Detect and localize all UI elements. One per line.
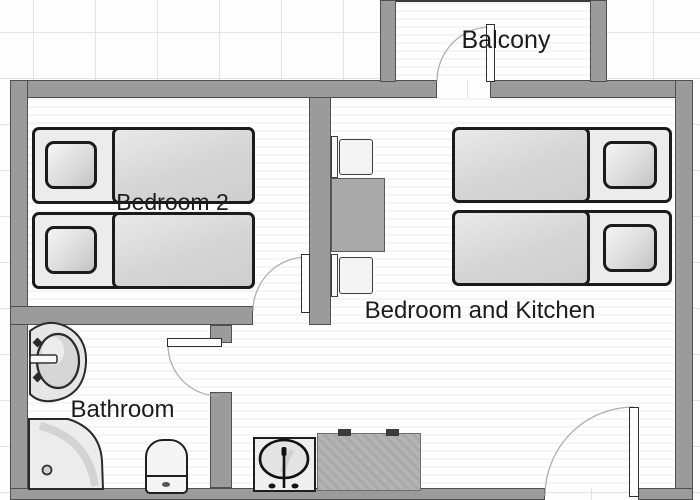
balcony-label: Balcony	[440, 27, 572, 55]
floor-plan: Balcony Bedroom 2 Bedroom and Kitchen Ba…	[0, 0, 700, 500]
wall-bottom-right	[638, 488, 693, 500]
wall-top-left	[10, 80, 437, 98]
bed-mattress	[452, 210, 590, 286]
wall-bedroom2-right	[309, 97, 331, 325]
bed-pillow	[603, 141, 657, 189]
bed-mattress	[452, 127, 590, 203]
bedroom2-door	[301, 254, 310, 313]
kitchen-sink	[253, 437, 316, 492]
bed-pillow	[45, 226, 97, 274]
counter-knob	[386, 429, 399, 436]
bedroom-kitchen-label: Bedroom and Kitchen	[350, 298, 610, 324]
counter-knob	[338, 429, 351, 436]
balcony-wall-left	[380, 0, 396, 82]
bed-pillow	[45, 141, 97, 189]
kitchen-counter	[317, 433, 421, 491]
chair	[331, 254, 375, 297]
bed-pillow	[603, 224, 657, 272]
bedroom2-label: Bedroom 2	[100, 190, 245, 215]
wall-bathroom-lower	[210, 392, 232, 488]
balcony-edge-line	[382, 0, 606, 2]
toilet	[145, 439, 188, 494]
balcony-wall-right	[590, 0, 607, 82]
wall-right	[675, 80, 693, 500]
dining-table	[331, 178, 385, 252]
wall-left	[10, 80, 28, 500]
bathroom-label: Bathroom	[55, 397, 190, 423]
wall-top-right	[490, 80, 693, 98]
wall-bedroom2-bottom	[10, 306, 253, 325]
bathroom-door	[167, 338, 222, 347]
chair	[331, 136, 375, 178]
entry-door	[629, 407, 639, 497]
bed-mattress	[112, 212, 255, 289]
